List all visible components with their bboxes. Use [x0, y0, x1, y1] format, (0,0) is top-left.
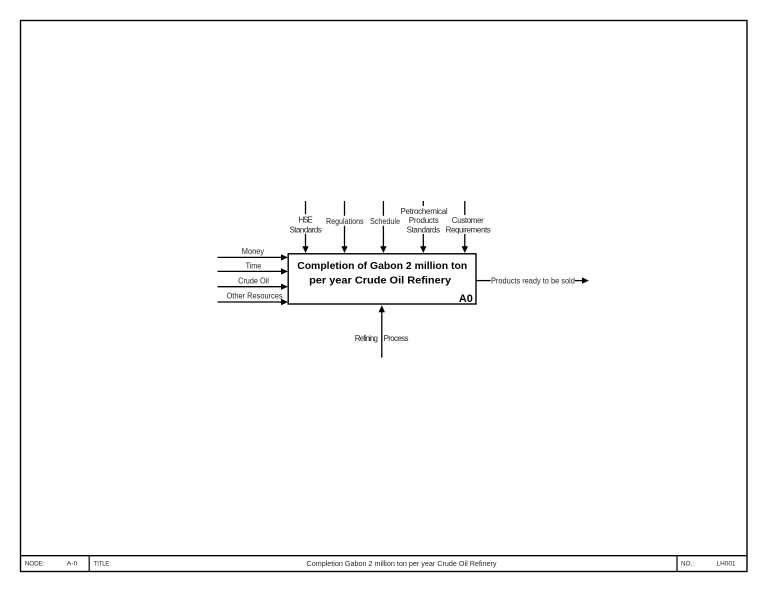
svg-text:Schedule: Schedule — [370, 217, 400, 226]
svg-text:NO.:: NO.: — [681, 560, 694, 567]
svg-text:Petrochemical: Petrochemical — [401, 207, 448, 216]
svg-text:Products: Products — [409, 216, 439, 225]
svg-text:LH001: LH001 — [717, 560, 737, 567]
svg-text:Customer: Customer — [452, 216, 484, 225]
svg-text:Other Resources: Other Resources — [227, 292, 283, 301]
svg-text:TITLE:: TITLE: — [94, 560, 111, 567]
svg-text:Refining: Refining — [355, 334, 378, 343]
svg-text:Crude Oil: Crude Oil — [238, 277, 269, 286]
svg-text:Requirements: Requirements — [446, 225, 491, 234]
svg-text:HSE: HSE — [299, 216, 313, 225]
svg-text:Time: Time — [246, 262, 262, 271]
svg-text:Standards: Standards — [290, 225, 322, 234]
svg-text:Products ready to be sold: Products ready to be sold — [491, 277, 575, 286]
svg-text:Money: Money — [242, 247, 264, 256]
svg-text:Standards: Standards — [407, 225, 441, 234]
svg-text:A-0: A-0 — [67, 560, 78, 567]
svg-text:Completion Gabon 2 million ton: Completion Gabon 2 million ton per year … — [307, 561, 498, 568]
svg-text:Completion of Gabon 2 million: Completion of Gabon 2 million ton — [297, 260, 467, 272]
svg-text:NODE:: NODE: — [25, 560, 45, 567]
svg-text:Process: Process — [384, 334, 409, 343]
svg-text:per year Crude Oil Refinery: per year Crude Oil Refinery — [309, 274, 451, 286]
svg-text:A0: A0 — [459, 293, 473, 305]
svg-text:Regulations: Regulations — [326, 217, 364, 226]
